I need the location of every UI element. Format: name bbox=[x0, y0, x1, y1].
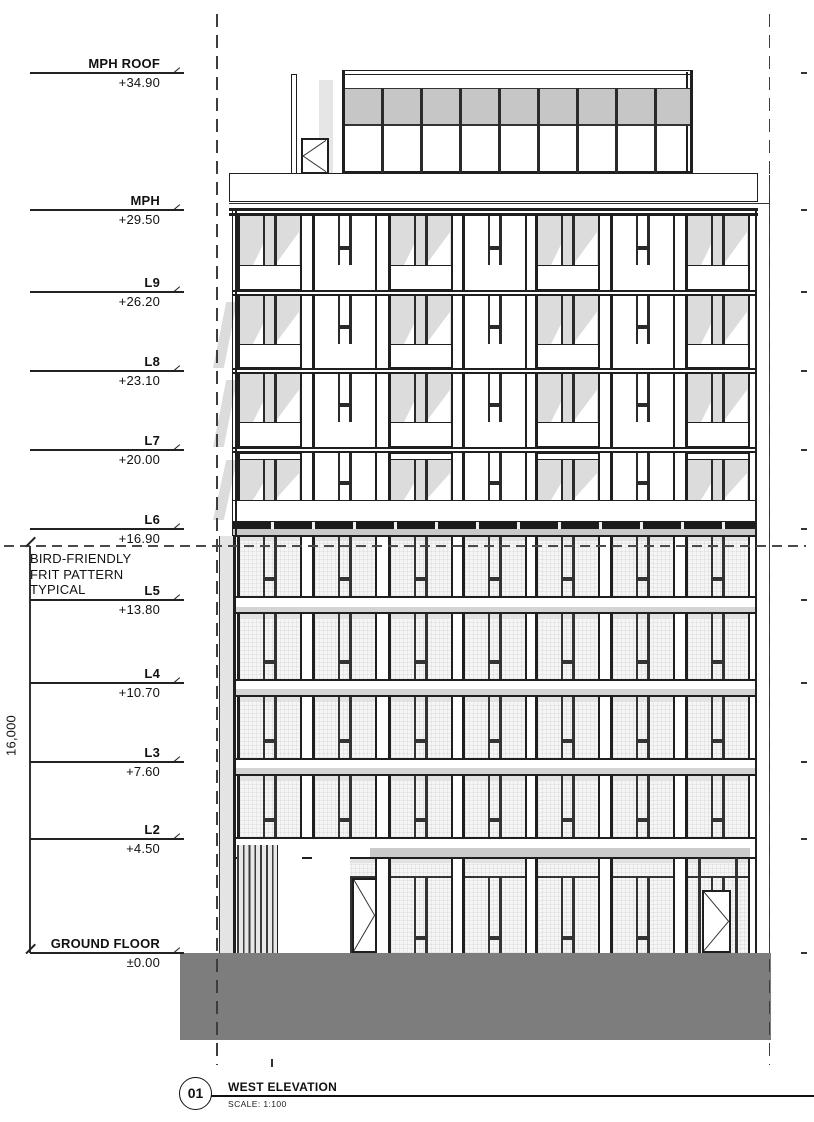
facade-left-edge bbox=[232, 208, 234, 536]
window-glazing bbox=[315, 296, 375, 344]
glazing-head-shade bbox=[391, 776, 451, 781]
window-frame bbox=[748, 374, 751, 447]
curtainwall-frame bbox=[748, 614, 751, 679]
window-mullion bbox=[425, 460, 428, 500]
window-frame bbox=[598, 453, 601, 500]
podium-glazing bbox=[538, 776, 598, 837]
podium-glazing bbox=[613, 697, 673, 758]
curtainwall-mullion bbox=[499, 776, 502, 837]
curtainwall-frame bbox=[237, 697, 240, 758]
curtainwall-mullion bbox=[274, 776, 277, 837]
window-mullion bbox=[349, 296, 352, 344]
window-mullion bbox=[711, 374, 714, 422]
l2-transom-band bbox=[370, 848, 750, 857]
curtainwall-frame bbox=[748, 776, 751, 837]
glazing-head-shade bbox=[688, 537, 748, 542]
window-frame bbox=[300, 374, 303, 447]
curtainwall-mullion bbox=[425, 776, 428, 837]
window-frame bbox=[451, 453, 454, 500]
curtainwall-frame bbox=[673, 776, 676, 837]
window-glazing bbox=[613, 216, 673, 265]
curtainwall-transom bbox=[414, 739, 428, 743]
level-tick-right bbox=[801, 291, 807, 293]
curtainwall-frame bbox=[312, 614, 315, 679]
window-frame bbox=[535, 296, 538, 368]
level-tick-right bbox=[801, 761, 807, 763]
level-elevation: +10.70 bbox=[30, 685, 160, 701]
window-mullion bbox=[711, 216, 714, 265]
curtainwall-mullion bbox=[647, 776, 650, 837]
window-mullion bbox=[414, 374, 417, 422]
curtainwall-mullion bbox=[274, 614, 277, 679]
window-frame bbox=[598, 374, 601, 447]
note-line: BIRD-FRIENDLY bbox=[30, 551, 180, 567]
curtainwall-transom bbox=[711, 818, 725, 822]
storefront-transom bbox=[391, 876, 451, 878]
glazing-head-shade bbox=[613, 697, 673, 702]
balcony-guard bbox=[389, 344, 452, 368]
glazing-head-shade bbox=[538, 776, 598, 781]
podium-glazing bbox=[315, 697, 375, 758]
balcony-guard bbox=[536, 265, 599, 290]
podium-glazing bbox=[465, 614, 525, 679]
penthouse-mullion bbox=[615, 88, 618, 173]
door-swing-icon bbox=[303, 140, 327, 172]
window-frame bbox=[685, 453, 688, 500]
window-frame bbox=[673, 216, 676, 290]
level-tick-right bbox=[801, 682, 807, 684]
drawing-title: WEST ELEVATION bbox=[228, 1080, 337, 1094]
curtainwall-mullion bbox=[561, 614, 564, 679]
window-mullion bbox=[636, 296, 639, 344]
glazing-head-shade bbox=[240, 697, 300, 702]
curtainwall-mullion bbox=[263, 776, 266, 837]
podium-glazing bbox=[240, 697, 300, 758]
spandrel-line bbox=[233, 596, 757, 598]
window-frame bbox=[300, 216, 303, 290]
window-transom bbox=[488, 246, 502, 250]
curtainwall-mullion bbox=[414, 614, 417, 679]
podium-glazing bbox=[391, 697, 451, 758]
curtainwall-frame bbox=[685, 614, 688, 679]
curtainwall-mullion bbox=[636, 697, 639, 758]
curtainwall-frame bbox=[610, 614, 613, 679]
curtainwall-transom bbox=[711, 660, 725, 664]
window-transom bbox=[338, 481, 352, 485]
curtainwall-frame bbox=[673, 697, 676, 758]
window-transom bbox=[338, 325, 352, 329]
curtainwall-transom bbox=[561, 936, 575, 940]
balcony-fascia bbox=[388, 453, 453, 460]
entrance-door bbox=[352, 878, 377, 953]
dimension-label: 16,000 bbox=[4, 696, 19, 776]
window-mullion bbox=[722, 296, 725, 344]
floor-band-line bbox=[233, 447, 757, 449]
window-mullion bbox=[561, 374, 564, 422]
window-mullion bbox=[349, 453, 352, 500]
curtainwall-frame bbox=[598, 776, 601, 837]
curtainwall-frame bbox=[451, 776, 454, 837]
balcony-guard bbox=[686, 265, 749, 290]
spandrel-line bbox=[233, 837, 757, 839]
curtainwall-mullion bbox=[414, 776, 417, 837]
property-line-east bbox=[769, 14, 771, 1065]
curtainwall-frame bbox=[610, 776, 613, 837]
window-mullion bbox=[263, 296, 266, 344]
curtainwall-frame bbox=[388, 697, 391, 758]
curtainwall-frame bbox=[598, 614, 601, 679]
curtainwall-frame bbox=[673, 614, 676, 679]
curtainwall-mullion bbox=[572, 776, 575, 837]
curtainwall-transom bbox=[488, 739, 502, 743]
curtainwall-mullion bbox=[561, 776, 564, 837]
penthouse-right-wall bbox=[690, 70, 693, 173]
curtainwall-frame bbox=[237, 614, 240, 679]
window-frame bbox=[237, 216, 240, 290]
window-transom bbox=[636, 246, 650, 250]
window-glazing bbox=[465, 453, 525, 500]
window-frame bbox=[462, 216, 465, 290]
level-tick-right bbox=[801, 370, 807, 372]
penthouse-clerestory bbox=[345, 88, 690, 126]
penthouse-mullion bbox=[654, 88, 657, 173]
curtainwall-mullion bbox=[572, 614, 575, 679]
window-mullion bbox=[274, 296, 277, 344]
window-frame bbox=[535, 374, 538, 447]
tick-mark bbox=[271, 1059, 273, 1067]
window-mullion bbox=[488, 374, 491, 422]
window-glazing bbox=[613, 453, 673, 500]
curtainwall-frame bbox=[598, 697, 601, 758]
balcony-guard bbox=[389, 265, 452, 290]
podium-glazing bbox=[613, 614, 673, 679]
penthouse-mullion bbox=[381, 88, 384, 173]
window-glazing bbox=[465, 216, 525, 265]
glazing-head-shade bbox=[315, 776, 375, 781]
curtainwall-frame bbox=[673, 858, 676, 953]
curtainwall-mullion bbox=[572, 877, 575, 953]
curtainwall-mullion bbox=[636, 877, 639, 953]
glazing-head-shade bbox=[240, 776, 300, 781]
window-frame bbox=[388, 216, 391, 290]
spandrel-line bbox=[233, 679, 757, 681]
level-name: GROUND FLOOR bbox=[30, 936, 160, 952]
floor-band-line bbox=[233, 368, 757, 370]
curtainwall-frame bbox=[535, 697, 538, 758]
window-mullion bbox=[647, 374, 650, 422]
podium-glazing bbox=[315, 614, 375, 679]
window-frame bbox=[673, 453, 676, 500]
roof-door bbox=[301, 138, 329, 175]
curtainwall-frame bbox=[748, 858, 751, 953]
glazing-head-shade bbox=[613, 537, 673, 542]
level-elevation: +23.10 bbox=[30, 373, 160, 389]
balcony-guard bbox=[238, 265, 301, 290]
balcony-guard bbox=[536, 422, 599, 447]
curtainwall-mullion bbox=[488, 614, 491, 679]
window-frame bbox=[237, 453, 240, 500]
curtainwall-mullion bbox=[338, 776, 341, 837]
balcony-fascia bbox=[237, 453, 302, 460]
storefront-transom bbox=[613, 876, 673, 878]
level-line bbox=[30, 291, 184, 292]
curtainwall-frame bbox=[685, 776, 688, 837]
window-mullion bbox=[414, 216, 417, 265]
window-frame bbox=[451, 296, 454, 368]
window-mullion bbox=[338, 453, 341, 500]
window-glazing bbox=[465, 374, 525, 422]
window-transom bbox=[488, 481, 502, 485]
elevation-sheet: MPH ROOF+34.90MPH+29.50L9+26.20L8+23.10L… bbox=[0, 0, 814, 1122]
curtainwall-transom bbox=[636, 660, 650, 664]
entry-louvers bbox=[237, 845, 277, 953]
window-mullion bbox=[647, 453, 650, 500]
curtainwall-transom bbox=[636, 739, 650, 743]
door-sidelight-mullion bbox=[735, 858, 738, 953]
glazing-head-shade bbox=[613, 776, 673, 781]
penthouse-mullion bbox=[537, 88, 540, 173]
window-glazing bbox=[613, 296, 673, 344]
curtainwall-transom bbox=[338, 660, 352, 664]
curtainwall-mullion bbox=[636, 614, 639, 679]
level-tick-right bbox=[801, 952, 807, 954]
window-mullion bbox=[499, 374, 502, 422]
glazing-head-shade bbox=[465, 776, 525, 781]
curtainwall-mullion bbox=[572, 697, 575, 758]
window-mullion bbox=[263, 374, 266, 422]
curtainwall-frame bbox=[462, 776, 465, 837]
curtainwall-mullion bbox=[722, 614, 725, 679]
window-mullion bbox=[561, 216, 564, 265]
window-transom bbox=[338, 246, 352, 250]
curtainwall-mullion bbox=[647, 697, 650, 758]
curtainwall-mullion bbox=[425, 877, 428, 953]
glazing-head-shade bbox=[538, 858, 598, 863]
curtainwall-mullion bbox=[722, 776, 725, 837]
glazing-head-shade bbox=[538, 697, 598, 702]
balcony-guard bbox=[686, 422, 749, 447]
window-mullion bbox=[636, 216, 639, 265]
facade-left-edge bbox=[233, 536, 236, 953]
level-name: L9 bbox=[30, 275, 160, 291]
curtainwall-frame bbox=[451, 614, 454, 679]
curtainwall-mullion bbox=[647, 877, 650, 953]
glazing-head-shade bbox=[315, 537, 375, 542]
spandrel-line bbox=[233, 612, 757, 614]
window-mullion bbox=[647, 216, 650, 265]
window-mullion bbox=[274, 216, 277, 265]
facade-top-line bbox=[229, 208, 758, 211]
penthouse-mullion bbox=[498, 88, 501, 173]
penthouse-cap bbox=[342, 70, 693, 75]
note-line: FRIT PATTERN bbox=[30, 567, 180, 583]
window-mullion bbox=[561, 296, 564, 344]
curtainwall-mullion bbox=[636, 776, 639, 837]
balcony-guard bbox=[536, 344, 599, 368]
balcony-fascia bbox=[685, 453, 750, 460]
curtainwall-mullion bbox=[338, 697, 341, 758]
roof-parapet-band bbox=[229, 173, 758, 202]
curtainwall-mullion bbox=[722, 697, 725, 758]
balcony-guard bbox=[686, 344, 749, 368]
level-name: L7 bbox=[30, 433, 160, 449]
level-tick-right bbox=[801, 838, 807, 840]
curtainwall-mullion bbox=[561, 697, 564, 758]
level-line bbox=[30, 952, 184, 953]
curtainwall-mullion bbox=[263, 697, 266, 758]
window-frame bbox=[535, 216, 538, 290]
window-transom bbox=[488, 403, 502, 407]
curtainwall-frame bbox=[300, 614, 303, 679]
window-frame bbox=[462, 296, 465, 368]
curtainwall-transom bbox=[561, 739, 575, 743]
window-mullion bbox=[561, 460, 564, 500]
window-mullion bbox=[274, 460, 277, 500]
curtainwall-mullion bbox=[499, 877, 502, 953]
window-frame bbox=[312, 296, 315, 368]
level-tick-right bbox=[801, 209, 807, 211]
window-frame bbox=[685, 216, 688, 290]
glazing-head-shade bbox=[315, 614, 375, 619]
level-elevation: +26.20 bbox=[30, 294, 160, 310]
window-mullion bbox=[572, 374, 575, 422]
level-line bbox=[30, 72, 184, 73]
window-mullion bbox=[488, 296, 491, 344]
curtainwall-transom bbox=[488, 660, 502, 664]
glazing-head-shade bbox=[688, 858, 748, 863]
window-mullion bbox=[636, 453, 639, 500]
podium-glazing bbox=[465, 697, 525, 758]
curtainwall-frame bbox=[525, 858, 528, 953]
glazing-head-shade bbox=[613, 614, 673, 619]
curtainwall-frame bbox=[451, 858, 454, 953]
window-frame bbox=[610, 216, 613, 290]
storefront-transom bbox=[465, 876, 525, 878]
level-elevation: ±0.00 bbox=[30, 955, 160, 971]
curtainwall-mullion bbox=[414, 697, 417, 758]
window-mullion bbox=[722, 374, 725, 422]
curtainwall-frame bbox=[388, 776, 391, 837]
window-mullion bbox=[263, 460, 266, 500]
curtainwall-transom bbox=[338, 818, 352, 822]
curtainwall-frame bbox=[535, 614, 538, 679]
curtainwall-frame bbox=[300, 776, 303, 837]
window-mullion bbox=[425, 216, 428, 265]
level-line bbox=[30, 599, 184, 600]
window-mullion bbox=[414, 296, 417, 344]
glazing-head-shade bbox=[240, 614, 300, 619]
window-frame bbox=[300, 296, 303, 368]
solid-panel bbox=[312, 843, 350, 953]
level-name: MPH bbox=[30, 193, 160, 209]
curtainwall-transom bbox=[561, 660, 575, 664]
curtainwall-mullion bbox=[561, 877, 564, 953]
penthouse-mullion bbox=[459, 88, 462, 173]
level-tick-right bbox=[801, 599, 807, 601]
podium-glazing bbox=[240, 614, 300, 679]
curtainwall-frame bbox=[535, 858, 538, 953]
window-frame bbox=[748, 453, 751, 500]
curtainwall-transom bbox=[414, 660, 428, 664]
curtainwall-transom bbox=[561, 577, 575, 581]
curtainwall-mullion bbox=[488, 776, 491, 837]
roof-edge-line bbox=[229, 203, 769, 204]
curtainwall-frame bbox=[312, 697, 315, 758]
window-frame bbox=[748, 216, 751, 290]
curtainwall-frame bbox=[610, 858, 613, 953]
drawing-number-bubble: 01 bbox=[179, 1077, 212, 1110]
curtainwall-frame bbox=[685, 858, 688, 953]
podium-side-edge bbox=[219, 536, 220, 953]
glazing-head-shade bbox=[465, 537, 525, 542]
curtainwall-frame bbox=[462, 614, 465, 679]
window-frame bbox=[300, 453, 303, 500]
podium-glazing bbox=[688, 614, 748, 679]
glazing-head-shade bbox=[688, 776, 748, 781]
window-mullion bbox=[636, 374, 639, 422]
window-mullion bbox=[414, 460, 417, 500]
door-swing-icon bbox=[354, 880, 375, 951]
level-line bbox=[30, 370, 184, 371]
glazing-head-shade bbox=[315, 697, 375, 702]
glazing-head-shade bbox=[240, 537, 300, 542]
podium-glazing bbox=[688, 776, 748, 837]
window-transom bbox=[636, 403, 650, 407]
curtainwall-transom bbox=[414, 936, 428, 940]
level-tick-right bbox=[801, 449, 807, 451]
window-glazing bbox=[315, 216, 375, 265]
window-frame bbox=[312, 216, 315, 290]
curtainwall-mullion bbox=[711, 697, 714, 758]
curtainwall-frame bbox=[610, 697, 613, 758]
level-name: L2 bbox=[30, 822, 160, 838]
window-mullion bbox=[425, 374, 428, 422]
window-frame bbox=[525, 296, 528, 368]
window-mullion bbox=[274, 374, 277, 422]
window-frame bbox=[462, 374, 465, 447]
window-mullion bbox=[722, 460, 725, 500]
penthouse-mullion bbox=[576, 88, 579, 173]
curtainwall-frame bbox=[375, 697, 378, 758]
curtainwall-transom bbox=[636, 577, 650, 581]
glazing-head-shade bbox=[688, 614, 748, 619]
curtainwall-frame bbox=[375, 776, 378, 837]
level-tick-right bbox=[801, 72, 807, 74]
curtainwall-mullion bbox=[488, 697, 491, 758]
title-underline bbox=[211, 1095, 814, 1097]
window-frame bbox=[610, 296, 613, 368]
door-sidelight-mullion bbox=[698, 858, 701, 953]
drawing-scale: SCALE: 1:100 bbox=[228, 1099, 287, 1109]
level-name: MPH ROOF bbox=[30, 56, 160, 72]
glazing-head-shade bbox=[391, 697, 451, 702]
window-frame bbox=[375, 296, 378, 368]
curtainwall-frame bbox=[525, 614, 528, 679]
glazing-head-shade bbox=[391, 614, 451, 619]
curtainwall-frame bbox=[300, 697, 303, 758]
window-mullion bbox=[263, 216, 266, 265]
level-elevation: +13.80 bbox=[30, 602, 160, 618]
window-frame bbox=[748, 296, 751, 368]
curtainwall-mullion bbox=[499, 697, 502, 758]
level-name: L8 bbox=[30, 354, 160, 370]
solid-panel bbox=[277, 845, 302, 953]
podium-glazing bbox=[465, 776, 525, 837]
curtainwall-mullion bbox=[711, 776, 714, 837]
balcony-fascia bbox=[535, 453, 600, 460]
podium-glazing bbox=[240, 776, 300, 837]
podium-side-wall bbox=[219, 536, 233, 953]
